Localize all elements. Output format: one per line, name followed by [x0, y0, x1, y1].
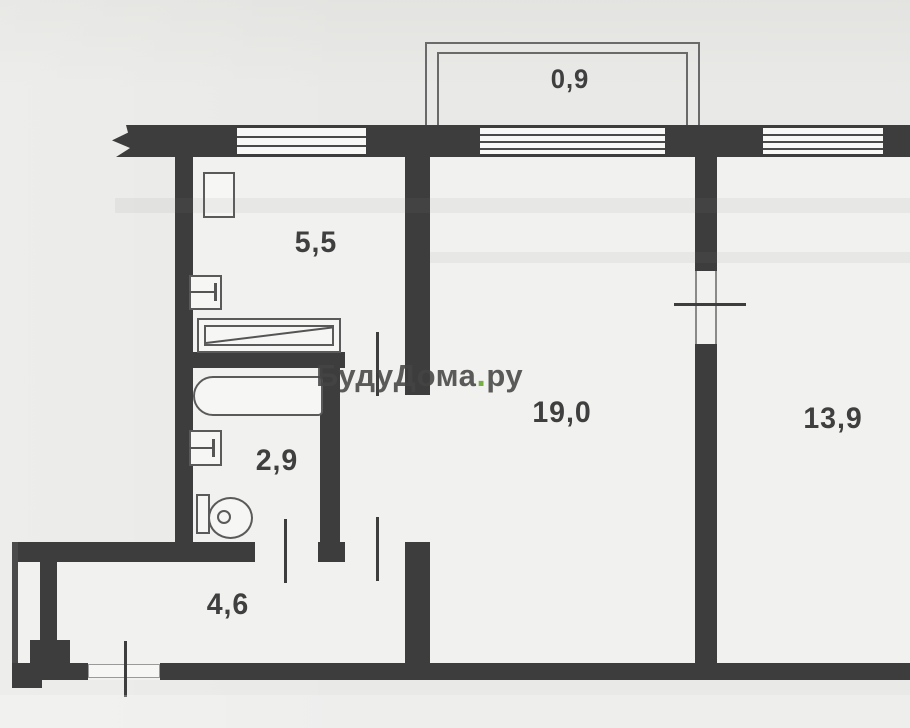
- hallway-right-wall: [405, 542, 430, 680]
- window-glass-line: [763, 141, 883, 143]
- kitchen-stove: [203, 172, 235, 218]
- bottom-wall-right: [160, 663, 910, 680]
- window-glass-line: [480, 141, 665, 143]
- window-balcony-door: [480, 125, 665, 157]
- exterior-wall-top-left: [108, 125, 238, 157]
- window-glass-line: [763, 134, 883, 136]
- window-glass-line: [480, 148, 665, 150]
- bathroom-area-label: 2,9: [249, 444, 306, 478]
- hallway-nook-door-swing-line: [376, 517, 379, 581]
- entrance-door-swing-line: [124, 641, 127, 697]
- exterior-wall-top-right: [883, 125, 910, 157]
- watermark-tld: ру: [486, 358, 523, 393]
- hallway-left-outer-wall: [12, 542, 18, 682]
- balcony-area-label: 0,9: [537, 64, 604, 95]
- window-glass-line: [237, 145, 366, 147]
- hallway-area-label: 4,6: [200, 588, 257, 622]
- hallway-top-wall-mid: [318, 542, 345, 562]
- bottom-left-nub: [12, 678, 42, 688]
- scan-streak: [0, 695, 910, 728]
- interroom-wall-upper: [695, 157, 717, 271]
- living-room-area-label: 19,0: [524, 396, 600, 430]
- window-room2: [763, 125, 883, 157]
- watermark-brand: БудуДома: [316, 358, 476, 393]
- kitchen-sink-faucet-line: [189, 291, 217, 293]
- interroom-wall-lower: [695, 344, 717, 663]
- exterior-wall-top-mid2: [665, 125, 763, 157]
- bathroom-sink-faucet-cross: [212, 439, 215, 457]
- window-glass-line: [480, 134, 665, 136]
- bathroom-right-wall: [320, 368, 340, 562]
- window-kitchen: [237, 125, 366, 157]
- room2-area-label: 13,9: [795, 402, 871, 436]
- watermark-dot: .: [476, 356, 486, 394]
- watermark: БудуДома.ру: [316, 356, 523, 395]
- interroom-door-swing-line: [674, 303, 746, 306]
- interroom-door-opening: [695, 271, 717, 344]
- bathtub: [193, 376, 323, 416]
- window-glass-line: [763, 148, 883, 150]
- kitchen-sink-faucet-cross: [214, 283, 217, 301]
- floor-plan: 0,9 5,5 2,9 4,6: [0, 0, 910, 728]
- kitchen-area-label: 5,5: [288, 226, 345, 260]
- window-glass-line: [237, 136, 366, 138]
- exterior-wall-top-mid1: [366, 125, 480, 157]
- bathroom-door-swing-line: [284, 519, 287, 583]
- toilet-bowl-center: [217, 510, 231, 524]
